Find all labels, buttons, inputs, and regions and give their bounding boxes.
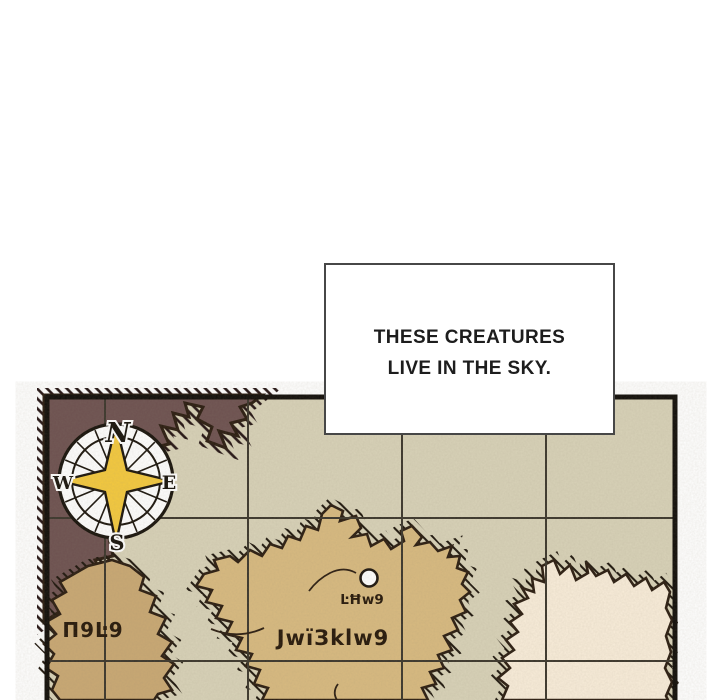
caption-line-2: LIVE IN THE SKY. [388,353,552,384]
grain-overlay [47,397,675,700]
webtoon-panel: П9Ŀ9 ĿĦw9 JwïЗklw9 N E S W [0,0,720,700]
caption-line-1: THESE CREATURES [374,322,565,353]
caption-box: THESE CREATURES LIVE IN THE SKY. [324,263,615,435]
